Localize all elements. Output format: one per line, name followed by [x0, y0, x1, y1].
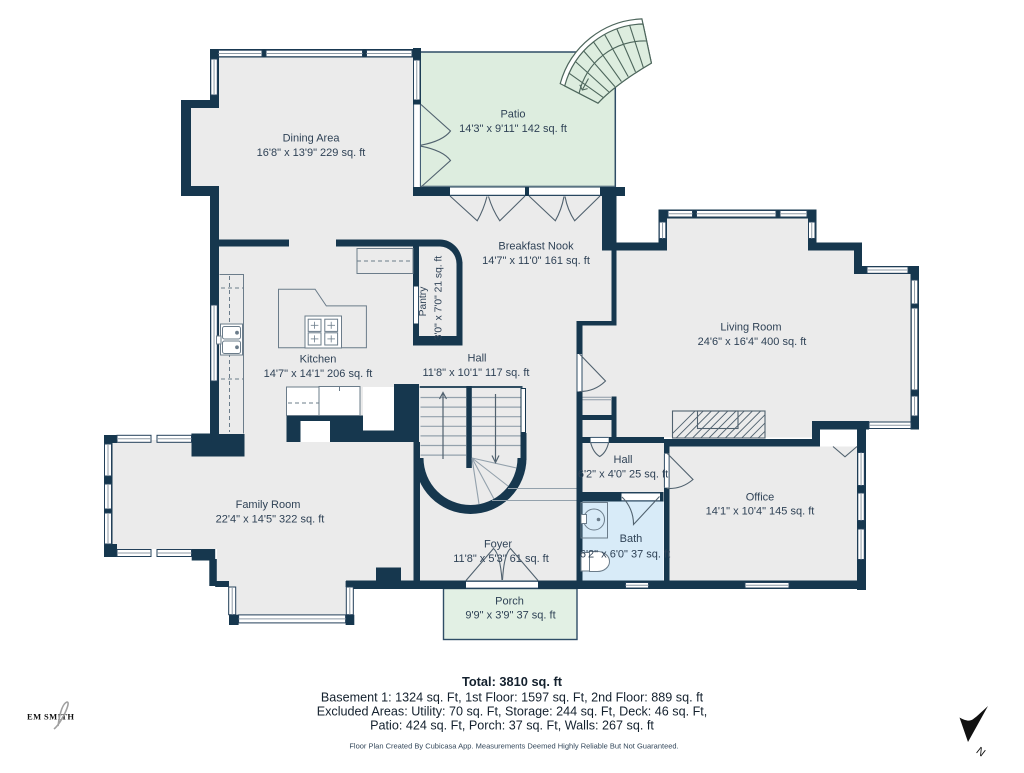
svg-text:6'2" x 6'0" 37 sq. ft: 6'2" x 6'0" 37 sq. ft [580, 549, 670, 561]
svg-text:22'4" x 14'5" 322 sq. ft: 22'4" x 14'5" 322 sq. ft [216, 514, 325, 526]
svg-text:Porch: Porch [495, 596, 524, 608]
svg-text:9'9" x 3'9" 37 sq. ft: 9'9" x 3'9" 37 sq. ft [465, 610, 555, 622]
svg-text:Total: 3810 sq. ft: Total: 3810 sq. ft [462, 674, 563, 689]
svg-text:Foyer: Foyer [484, 539, 512, 551]
svg-text:Floor Plan Created By Cubicasa: Floor Plan Created By Cubicasa App. Meas… [349, 742, 678, 751]
svg-text:Excluded Areas: Utility: 70 sq: Excluded Areas: Utility: 70 sq. Ft, Stor… [317, 705, 708, 719]
svg-text:N: N [974, 745, 988, 759]
svg-text:Hall: Hall [468, 353, 487, 365]
svg-text:Living Room: Living Room [720, 322, 781, 334]
svg-text:Basement 1: 1324 sq. Ft, 1st F: Basement 1: 1324 sq. Ft, 1st Floor: 1597… [321, 691, 704, 705]
svg-text:14'3" x 9'11" 142 sq. ft: 14'3" x 9'11" 142 sq. ft [459, 123, 567, 135]
svg-text:11'8" x 10'1" 117 sq. ft: 11'8" x 10'1" 117 sq. ft [422, 367, 529, 379]
svg-text:14'1" x 10'4" 145 sq. ft: 14'1" x 10'4" 145 sq. ft [706, 506, 815, 518]
svg-text:16'8" x 13'9" 229 sq. ft: 16'8" x 13'9" 229 sq. ft [257, 147, 366, 159]
svg-text:11'8" x 5'3" 61 sq. ft: 11'8" x 5'3" 61 sq. ft [453, 553, 549, 565]
svg-text:24'6" x 16'4" 400 sq. ft: 24'6" x 16'4" 400 sq. ft [698, 336, 807, 348]
svg-text:Kitchen: Kitchen [300, 354, 337, 366]
svg-text:Bath: Bath [620, 533, 643, 545]
svg-text:Dining Area: Dining Area [283, 133, 341, 145]
svg-text:Breakfast Nook: Breakfast Nook [498, 241, 574, 253]
svg-text:Patio: 424 sq. Ft, Porch: 37 s: Patio: 424 sq. Ft, Porch: 37 sq. Ft, Wal… [370, 719, 654, 733]
svg-text:3'0" x 7'0" 21 sq. ft: 3'0" x 7'0" 21 sq. ft [434, 256, 445, 341]
svg-text:Pantry: Pantry [418, 286, 429, 317]
svg-text:14'7" x 14'1" 206 sq. ft: 14'7" x 14'1" 206 sq. ft [264, 368, 373, 380]
svg-text:6'2" x 4'0" 25 sq. ft: 6'2" x 4'0" 25 sq. ft [578, 469, 668, 481]
svg-text:Hall: Hall [614, 454, 633, 466]
svg-text:Office: Office [746, 492, 775, 504]
svg-text:14'7" x 11'0" 161 sq. ft: 14'7" x 11'0" 161 sq. ft [482, 255, 590, 267]
svg-text:Patio: Patio [500, 109, 525, 121]
svg-text:Family Room: Family Room [236, 499, 301, 511]
svg-text:EM SMITH: EM SMITH [27, 712, 74, 722]
